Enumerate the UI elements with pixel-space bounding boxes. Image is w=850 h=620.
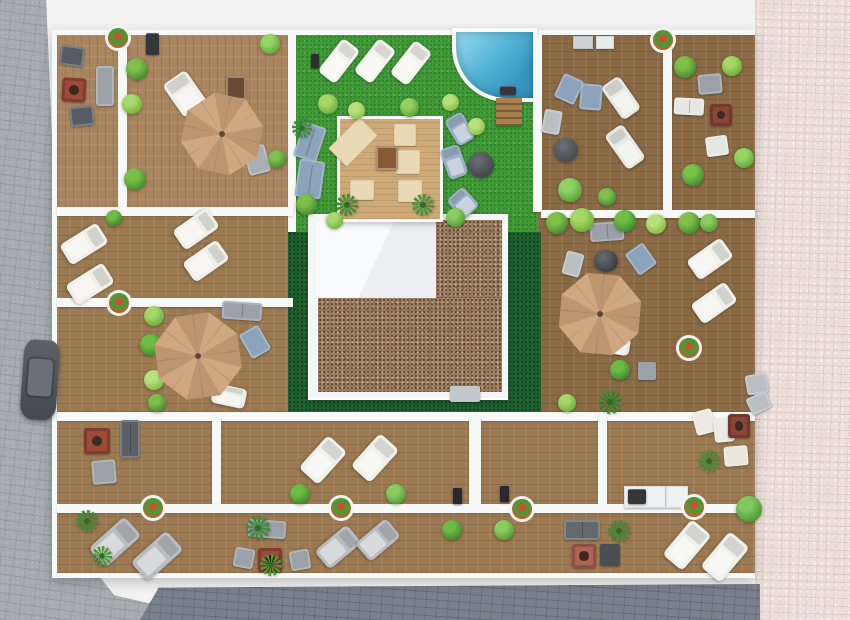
shrub <box>260 34 280 54</box>
armchair <box>238 324 271 359</box>
flower-planter <box>108 28 128 48</box>
outdoor-sofa <box>294 158 325 199</box>
bench <box>96 66 114 106</box>
armchair <box>541 109 563 136</box>
palm-plant <box>608 520 630 542</box>
rooftop-plan-rendering <box>0 0 850 620</box>
storage-box <box>600 544 620 566</box>
sun-lounger <box>601 75 642 120</box>
armchair <box>232 546 255 569</box>
sun-lounger <box>604 123 646 170</box>
flower-planter <box>679 338 699 358</box>
sun-lounger <box>389 40 432 87</box>
shrub <box>646 214 666 234</box>
seat-cushion <box>394 124 416 146</box>
shrub <box>318 94 338 114</box>
fire-pit-table <box>710 104 732 126</box>
shrub <box>442 520 462 540</box>
sun-lounger <box>351 433 400 483</box>
shrub <box>386 484 406 504</box>
fire-pit-table <box>84 428 110 454</box>
bollard-light <box>311 54 319 68</box>
shrub <box>126 58 148 80</box>
flower-planter <box>331 498 351 518</box>
platform-table <box>376 146 398 170</box>
shrub <box>290 484 310 504</box>
shrub <box>122 94 142 114</box>
sun-lounger <box>355 518 401 562</box>
shrub <box>734 148 754 168</box>
bbq-grill <box>146 33 159 55</box>
sun-lounger <box>59 222 109 266</box>
palm-plant <box>698 450 720 472</box>
shrub <box>446 208 465 227</box>
shrub <box>326 212 343 229</box>
bbq-grill <box>628 489 646 504</box>
sun-lounger <box>317 38 360 85</box>
shrub <box>598 188 616 206</box>
shrub <box>678 212 700 234</box>
seat-cushion <box>328 117 377 166</box>
fire-pit-table <box>572 544 596 568</box>
shrub <box>442 94 459 111</box>
palm-plant <box>598 390 622 414</box>
armchair <box>579 83 603 111</box>
sun-lounger <box>299 435 348 485</box>
shrub <box>610 360 630 380</box>
shrub <box>722 56 742 76</box>
palm-plant <box>292 118 312 138</box>
shrub <box>296 194 317 215</box>
sun-lounger <box>353 38 396 85</box>
sun-lounger <box>690 281 738 325</box>
furniture-layer <box>0 0 850 620</box>
shrub <box>468 118 485 135</box>
fire-bowl <box>594 250 618 272</box>
shrub <box>494 520 514 540</box>
lounge-chair <box>439 144 469 181</box>
shrub <box>558 394 576 412</box>
flower-planter <box>109 293 129 313</box>
shrub <box>546 212 568 234</box>
flower-planter <box>512 499 532 519</box>
shrub <box>106 210 122 226</box>
shrub <box>736 496 762 522</box>
armchair <box>625 242 658 276</box>
armchair <box>705 135 730 158</box>
pool-ladder <box>500 86 516 95</box>
flower-planter <box>143 498 163 518</box>
shrub <box>700 214 718 232</box>
outdoor-sofa <box>221 301 262 322</box>
shrub <box>148 394 166 412</box>
palm-plant <box>92 546 112 566</box>
armchair <box>69 105 95 127</box>
armchair <box>697 73 723 95</box>
coffee-table <box>468 152 494 178</box>
outdoor-kitchen-counter <box>596 36 614 49</box>
palm-plant <box>412 194 434 216</box>
sun-lounger <box>686 237 734 281</box>
armchair <box>91 459 117 485</box>
parked-car <box>19 339 60 421</box>
shrub <box>558 178 582 202</box>
armchair <box>59 44 86 67</box>
shrub <box>674 56 696 78</box>
coffee-table <box>554 138 578 162</box>
palm-plant <box>336 194 358 216</box>
armchair <box>288 548 311 571</box>
sun-lounger <box>65 262 115 306</box>
ottoman <box>638 362 656 380</box>
shrub <box>570 208 594 232</box>
outdoor-kitchen-counter <box>573 36 593 49</box>
armchair <box>561 250 585 278</box>
palm-plant <box>246 516 270 540</box>
shrub <box>400 98 419 117</box>
shrub <box>614 210 636 232</box>
outdoor-sofa <box>564 520 600 540</box>
bollard-light <box>500 486 509 502</box>
armchair <box>723 445 749 467</box>
shrub <box>682 164 704 186</box>
shrub <box>348 102 365 119</box>
palm-plant <box>260 554 282 576</box>
shrub <box>144 306 164 326</box>
fire-pit-table <box>728 414 750 438</box>
shrub <box>124 168 146 190</box>
roof-vent <box>450 386 480 402</box>
flower-planter <box>653 30 673 50</box>
pool-steps <box>496 98 522 126</box>
palm-plant <box>76 510 98 532</box>
outdoor-sofa <box>674 97 705 116</box>
flower-planter <box>684 497 704 517</box>
seat-cushion <box>396 150 420 174</box>
bollard-light <box>453 488 462 504</box>
outdoor-sofa <box>120 420 140 458</box>
fire-pit-table <box>61 77 86 102</box>
shrub <box>268 150 286 168</box>
sun-lounger <box>314 524 362 569</box>
